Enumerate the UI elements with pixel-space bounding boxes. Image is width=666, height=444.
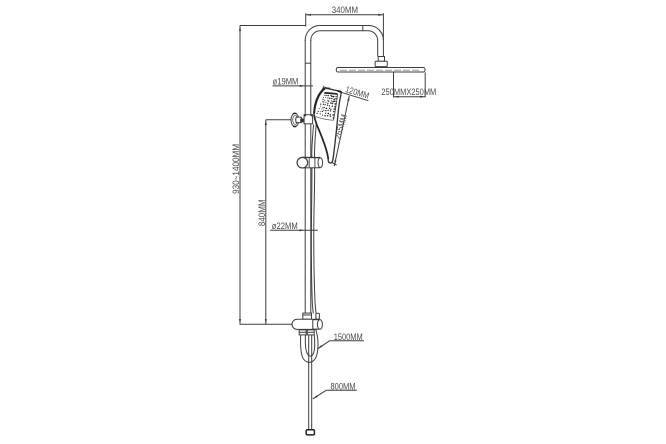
svg-text:800MM: 800MM [331,381,356,391]
svg-text:120MM: 120MM [344,84,370,100]
svg-text:340MM: 340MM [332,5,358,15]
svg-text:840MM: 840MM [257,200,267,227]
svg-text:ø22MM: ø22MM [272,221,298,231]
svg-text:250MMX250MM: 250MMX250MM [381,87,436,97]
svg-text:930~1400MM: 930~1400MM [231,144,241,194]
svg-text:1500MM: 1500MM [334,332,363,342]
svg-text:ø19MM: ø19MM [273,76,299,86]
